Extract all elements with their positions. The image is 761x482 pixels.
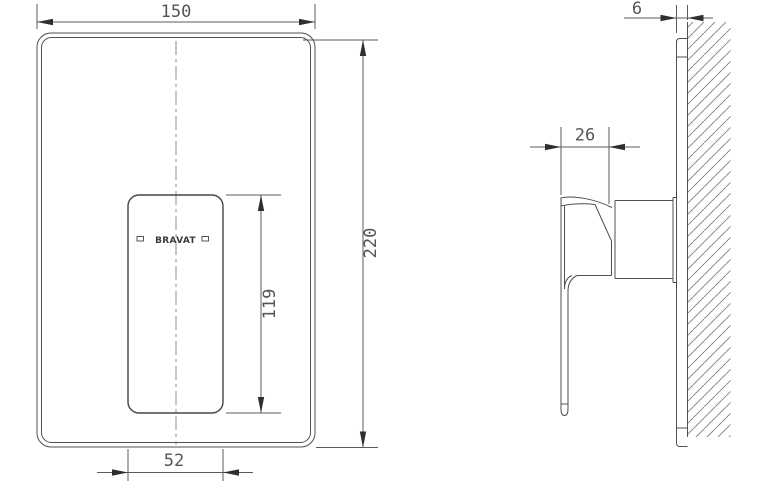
dim-text-plate-width: 150 [161, 2, 192, 22]
dimension-plate-width: 150 [37, 2, 315, 29]
arrowhead [299, 19, 315, 25]
dim-text-handle-plate-height: 119 [260, 289, 280, 320]
technical-drawing-page: BRAVAT 150 220 119 52 [0, 0, 761, 482]
arrowhead [661, 15, 677, 21]
handle-head-top [561, 197, 613, 207]
dim-text-handle-plate-width: 52 [164, 451, 184, 471]
brand-logo: BRAVAT [155, 236, 196, 246]
side-plate-outline [677, 39, 688, 447]
dim-text-handle-depth: 26 [575, 126, 595, 146]
arrowhead [223, 469, 239, 475]
handle-head-crease [595, 205, 612, 276]
logo-mark-left [137, 237, 144, 242]
drawing-canvas: BRAVAT 150 220 119 52 [0, 0, 761, 482]
front-view: BRAVAT [37, 33, 315, 447]
arrowhead [360, 40, 366, 56]
dim-text-plate-thickness: 6 [632, 0, 642, 19]
wall-hatching [688, 22, 731, 437]
dimension-handle-depth: 26 [530, 126, 640, 205]
arrowhead [258, 195, 264, 211]
arrowhead [258, 397, 264, 413]
logo-mark-right [202, 237, 209, 242]
arrowhead [360, 432, 366, 448]
arrowhead [545, 144, 561, 150]
arrowhead [112, 469, 128, 475]
dim-text-plate-height: 220 [361, 228, 381, 259]
handle-lever-outline [561, 198, 577, 416]
arrowhead [688, 15, 704, 21]
valve-body [615, 198, 677, 283]
handle-head-inner-top [561, 204, 596, 206]
dimension-handle-plate-width: 52 [97, 449, 253, 481]
arrowhead [37, 19, 53, 25]
side-view [561, 22, 731, 447]
arrowhead [609, 144, 625, 150]
handle-lever [561, 197, 613, 415]
handle-neck-inner [565, 206, 573, 289]
dimension-handle-plate-height: 119 [226, 195, 281, 413]
